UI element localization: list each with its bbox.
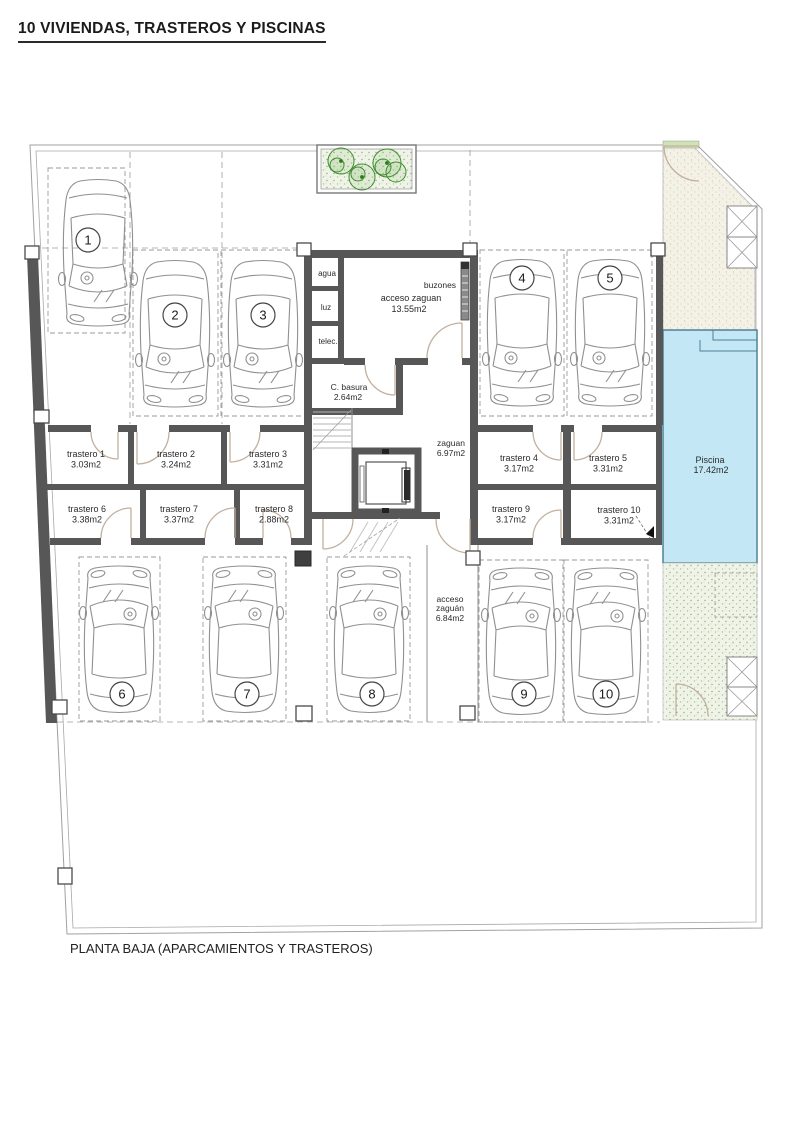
acceso-zaguan-label: acceso zaguan	[381, 293, 442, 303]
trastero-2-label: trastero 2	[157, 449, 195, 459]
buzones-strip	[461, 262, 469, 320]
elevator	[355, 449, 418, 513]
acceso-zaguan-area: 13.55m2	[391, 304, 426, 314]
trastero-9-area: 3.17m2	[496, 515, 526, 525]
floor-plan-drawing: 1 2 3 4 5 6 7 8 9 10 agua luz telec. buz…	[0, 0, 800, 1132]
parking-9-number: 9	[520, 687, 527, 702]
parking-4-number: 4	[518, 271, 525, 286]
piscina-label: Piscina	[695, 455, 724, 465]
trastero-7-label: trastero 7	[160, 504, 198, 514]
trastero-9-label: trastero 9	[492, 504, 530, 514]
zaguan-label: zaguan	[437, 438, 465, 448]
parking-badge-9: 9	[512, 682, 536, 706]
trastero-6-label: trastero 6	[68, 504, 106, 514]
parking-badge-4: 4	[510, 266, 534, 290]
parking-badge-3: 3	[251, 303, 275, 327]
acceso-sur-line2: zaguán	[436, 603, 464, 613]
trastero-5-area: 3.31m2	[593, 464, 623, 474]
parking-badge-1: 1	[76, 228, 100, 252]
corridor-lines	[427, 545, 478, 722]
planter	[317, 145, 416, 193]
acceso-sur-area: 6.84m2	[436, 613, 465, 623]
car-3	[224, 261, 303, 408]
car-1	[59, 180, 138, 327]
parking-10-number: 10	[599, 687, 613, 702]
parking-1-number: 1	[84, 233, 91, 248]
trastero-3-area: 3.31m2	[253, 460, 283, 470]
parking-badge-2: 2	[163, 303, 187, 327]
trastero-3-label: trastero 3	[249, 449, 287, 459]
parking-8-number: 8	[368, 687, 375, 702]
luz-label: luz	[321, 303, 331, 312]
outdoor-areas	[317, 141, 757, 720]
buzones-label: buzones	[424, 280, 456, 290]
car-2	[136, 261, 215, 408]
parking-badge-10: 10	[593, 681, 619, 707]
trastero-2-area: 3.24m2	[161, 460, 191, 470]
parking-badge-6: 6	[110, 682, 134, 706]
parking-2-number: 2	[171, 308, 178, 323]
trastero-5-label: trastero 5	[589, 453, 627, 463]
floor-plan-page: 10 VIVIENDAS, TRASTEROS Y PISCINAS	[0, 0, 800, 1132]
grass-strip	[663, 141, 699, 148]
trastero-8-label: trastero 8	[255, 504, 293, 514]
trastero-1-area: 3.03m2	[71, 460, 101, 470]
trastero-10-label: trastero 10	[597, 505, 640, 515]
parking-badge-5: 5	[598, 266, 622, 290]
parking-6-number: 6	[118, 687, 125, 702]
agua-label: agua	[318, 269, 336, 278]
parking-badge-7: 7	[235, 682, 259, 706]
telec-label: telec.	[318, 337, 337, 346]
parking-3-number: 3	[259, 308, 266, 323]
piscina-area: 17.42m2	[693, 465, 728, 475]
parking-badges: 1 2 3 4 5 6 7 8 9 10	[76, 228, 622, 707]
trastero-7-area: 3.37m2	[164, 515, 194, 525]
columns	[25, 243, 665, 884]
walls	[27, 250, 663, 723]
c-basura-label: C. basura	[331, 382, 368, 392]
trastero-1-label: trastero 1	[67, 449, 105, 459]
trastero-8-area: 2.88m2	[259, 515, 289, 525]
parking-7-number: 7	[243, 687, 250, 702]
plan-caption: PLANTA BAJA (APARCAMIENTOS Y TRASTEROS)	[70, 941, 373, 956]
zaguan-area: 6.97m2	[437, 448, 466, 458]
pool	[663, 330, 757, 563]
trastero-6-area: 3.38m2	[72, 515, 102, 525]
c-basura-area: 2.64m2	[334, 392, 363, 402]
parking-badge-8: 8	[360, 682, 384, 706]
trastero-10-area: 3.31m2	[604, 516, 634, 526]
trastero-4-area: 3.17m2	[504, 464, 534, 474]
parking-5-number: 5	[606, 271, 613, 286]
trastero-4-label: trastero 4	[500, 453, 538, 463]
